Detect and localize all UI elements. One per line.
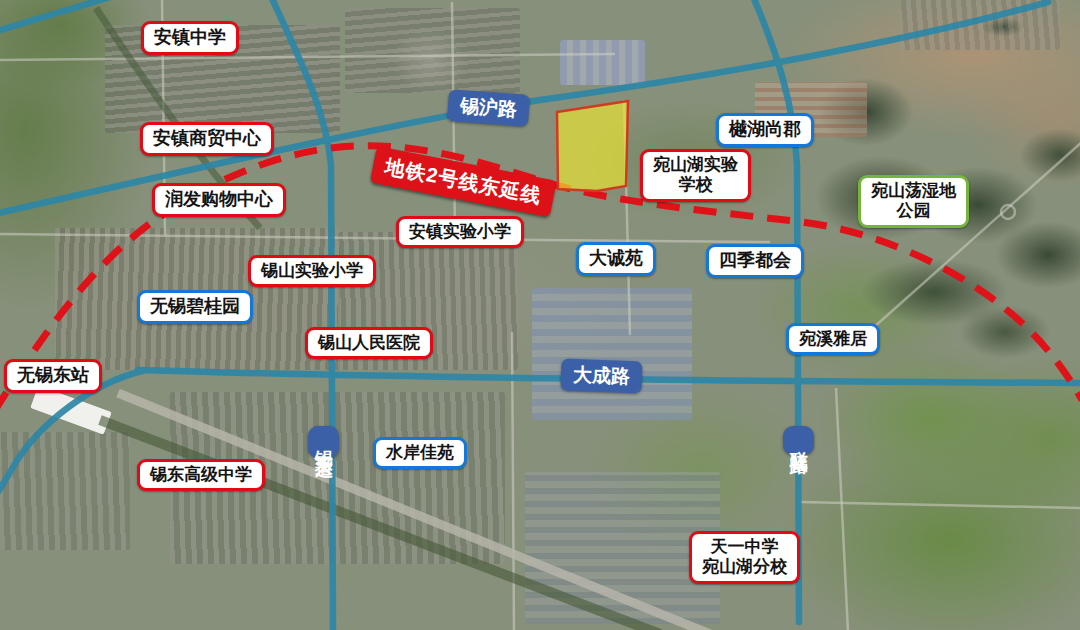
label-anzhen-trade-center: 安镇商贸中心 [140, 122, 274, 156]
road-lianfu [752, 0, 799, 622]
road-xidong-avenue [270, 0, 333, 630]
label-yuehu-shangjun: 樾湖尚郡 [716, 113, 814, 147]
label-xishan-experimental-primary: 锡山实验小学 [248, 255, 376, 287]
label-anzhen-experimental-primary: 安镇实验小学 [396, 216, 524, 248]
highlighted-parcel [557, 101, 628, 191]
label-anzhen-middle-school: 安镇中学 [141, 21, 239, 55]
label-wuxi-east-station: 无锡东站 [4, 359, 102, 393]
label-xishan-peoples-hospital: 锡山人民医院 [305, 327, 433, 359]
label-xidong-high-school: 锡东高级中学 [137, 459, 265, 491]
label-lianfu-road: 联福路 [783, 426, 814, 455]
label-xidong-avenue: 锡东大道 [308, 426, 339, 458]
railway-corridor [118, 393, 710, 630]
satellite-map: 安镇中学 安镇商贸中心 润发购物中心 樾湖尚郡 宛山湖实验 学校 宛山荡湿地 公… [0, 0, 1080, 630]
label-dachengyuan: 大诚苑 [576, 242, 656, 276]
label-siji-duhui: 四季都会 [706, 244, 804, 278]
label-shuian-jiayuan: 水岸佳苑 [373, 437, 467, 469]
label-wanshanhu-experimental-school: 宛山湖实验 学校 [640, 149, 751, 202]
label-tianyi-branch-school: 天一中学 宛山湖分校 [689, 531, 800, 584]
label-xihu-road: 锡沪路 [447, 89, 530, 126]
label-wuxi-biguiyuan: 无锡碧桂园 [137, 290, 253, 324]
label-wanxi-yaju: 宛溪雅居 [786, 323, 880, 355]
label-runfa-shopping-center: 润发购物中心 [152, 183, 286, 217]
label-dacheng-road: 大成路 [560, 359, 642, 394]
label-wanshandang-wetland-park: 宛山荡湿地 公园 [858, 175, 969, 228]
